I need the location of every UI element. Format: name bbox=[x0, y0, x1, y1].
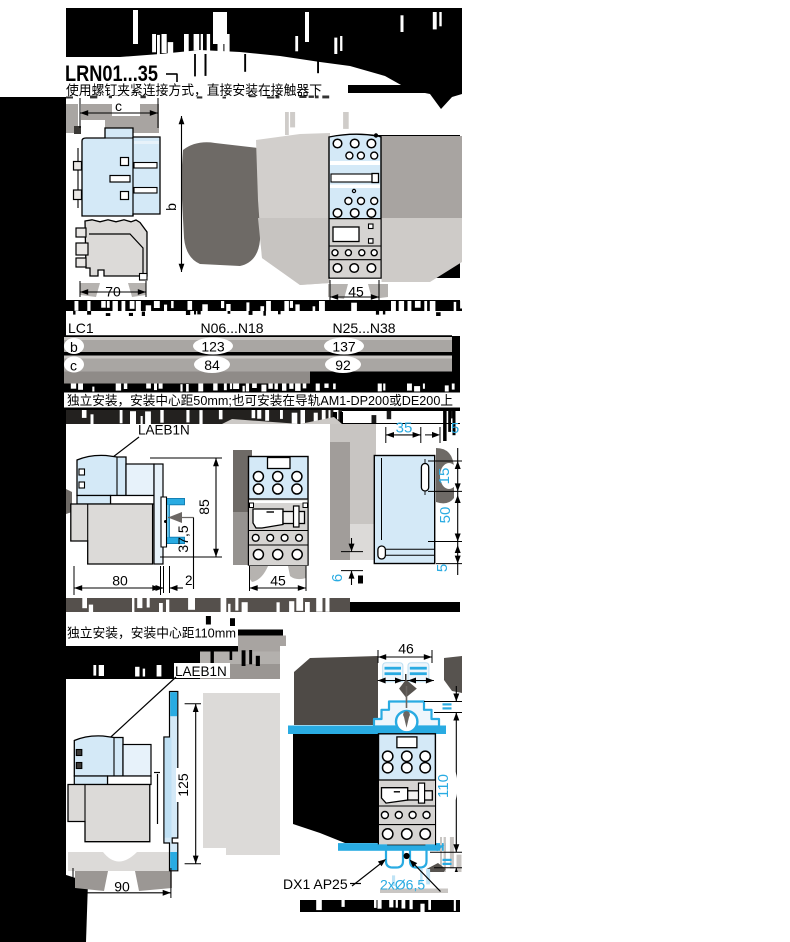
svg-text:15: 15 bbox=[436, 468, 453, 485]
svg-text:独立安装，安装中心距50mm;也可安装在导轨AM1-DP20: 独立安装，安装中心距50mm;也可安装在导轨AM1-DP200或DE200上 bbox=[67, 393, 453, 408]
svg-text:45: 45 bbox=[270, 573, 286, 589]
svg-text:45: 45 bbox=[348, 284, 364, 300]
svg-text:46: 46 bbox=[398, 641, 414, 657]
svg-text:123: 123 bbox=[201, 339, 225, 355]
svg-text:LC1: LC1 bbox=[68, 320, 94, 336]
svg-text:N25...N38: N25...N38 bbox=[333, 320, 396, 336]
svg-text:6: 6 bbox=[329, 574, 346, 582]
svg-text:35: 35 bbox=[396, 420, 413, 437]
svg-text:独立安装，安装中心距110mm: 独立安装，安装中心距110mm bbox=[67, 626, 236, 641]
svg-text:137: 137 bbox=[332, 339, 356, 355]
svg-text:c: c bbox=[115, 98, 122, 114]
svg-text:LAEB1N: LAEB1N bbox=[175, 664, 227, 679]
svg-text:50: 50 bbox=[437, 507, 454, 524]
svg-text:5: 5 bbox=[434, 564, 451, 572]
svg-text:5: 5 bbox=[451, 420, 459, 437]
svg-text:使用螺钉夹紧连接方式，直接安装在接触器下: 使用螺钉夹紧连接方式，直接安装在接触器下 bbox=[66, 82, 322, 98]
svg-text:b: b bbox=[163, 203, 179, 211]
svg-text:N06...N18: N06...N18 bbox=[201, 320, 264, 336]
svg-text:DX1 AP25: DX1 AP25 bbox=[283, 876, 348, 892]
svg-text:b: b bbox=[70, 339, 78, 355]
svg-text:84: 84 bbox=[204, 357, 220, 373]
svg-text:90: 90 bbox=[114, 879, 130, 895]
svg-text:125: 125 bbox=[175, 773, 191, 797]
svg-text:85: 85 bbox=[196, 499, 212, 515]
svg-text:110: 110 bbox=[435, 774, 452, 798]
svg-text:37,5: 37,5 bbox=[175, 525, 191, 552]
svg-text:c: c bbox=[70, 358, 77, 374]
svg-text:2xØ6,5: 2xØ6,5 bbox=[380, 877, 425, 893]
svg-text:80: 80 bbox=[112, 573, 128, 589]
svg-text:92: 92 bbox=[335, 357, 351, 373]
svg-text:2: 2 bbox=[185, 573, 193, 588]
svg-text:70: 70 bbox=[105, 284, 121, 300]
svg-text:LAEB1N: LAEB1N bbox=[138, 423, 190, 438]
